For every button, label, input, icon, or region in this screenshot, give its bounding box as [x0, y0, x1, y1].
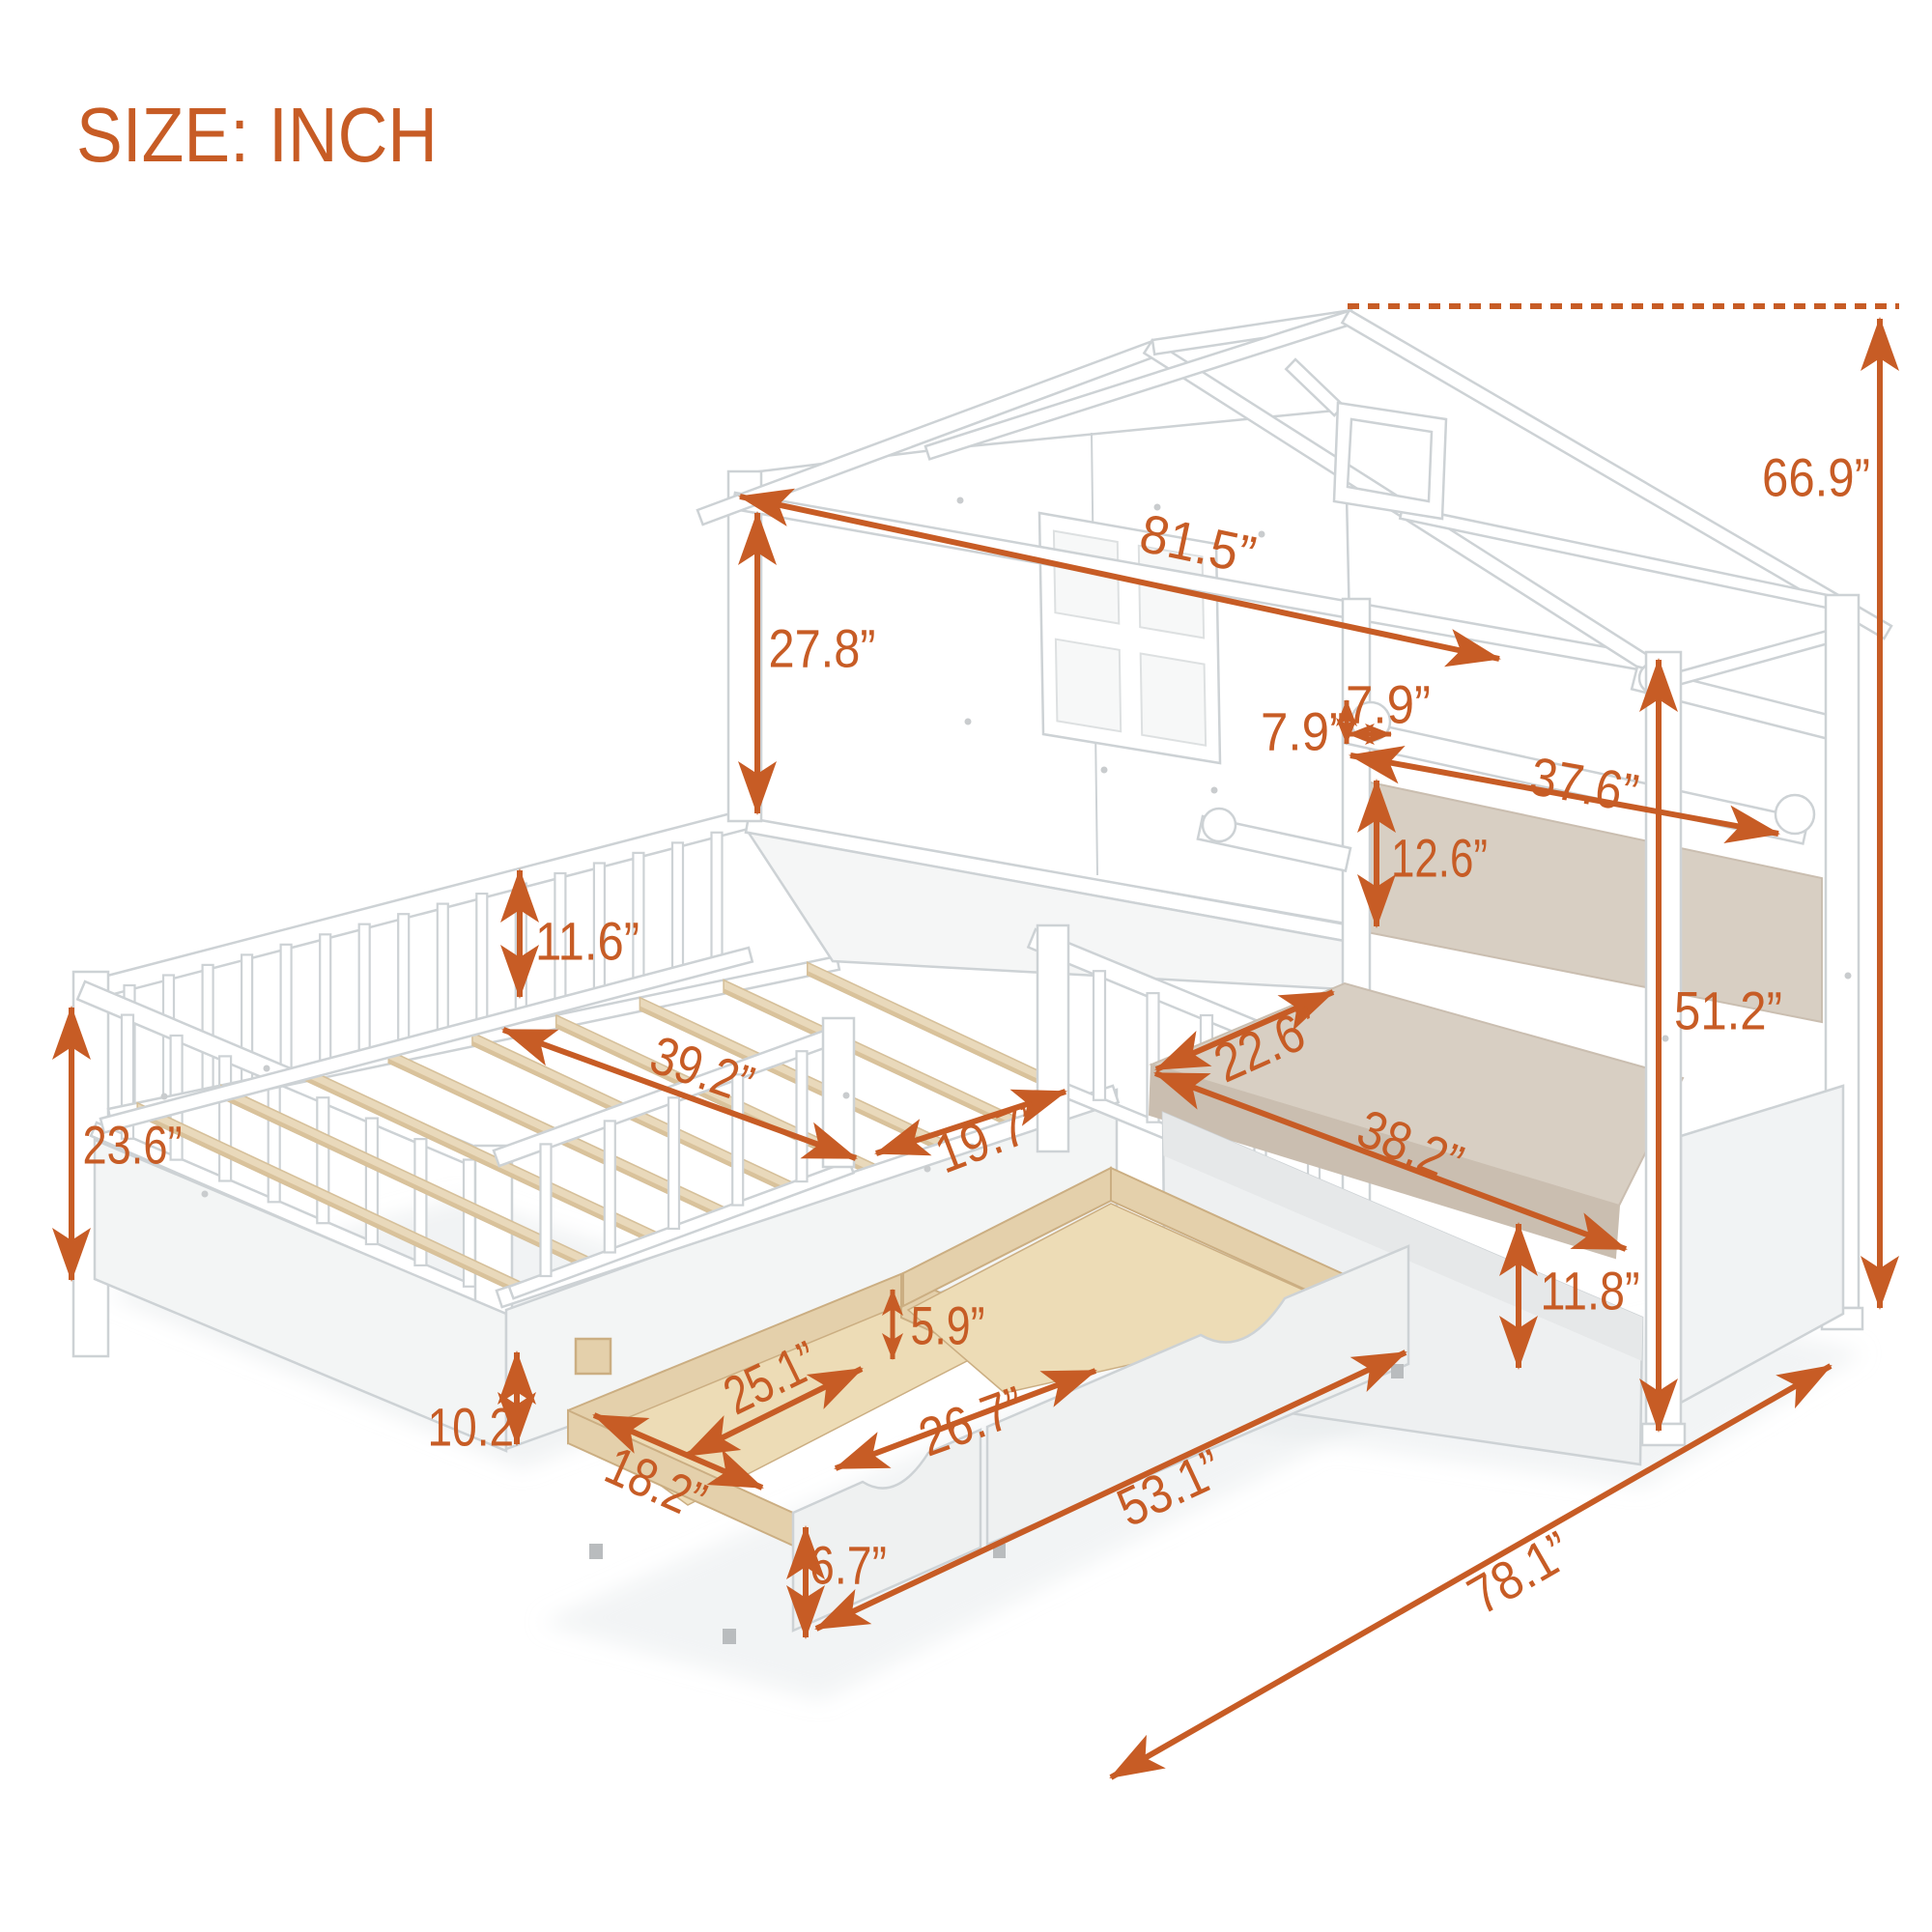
svg-text:10.2”: 10.2”	[428, 1397, 529, 1458]
svg-text:27.8”: 27.8”	[769, 618, 876, 679]
svg-text:66.9”: 66.9”	[1762, 447, 1870, 508]
svg-text:SIZE: INCH: SIZE: INCH	[76, 92, 438, 178]
svg-text:5.9”: 5.9”	[911, 1295, 985, 1356]
svg-text:23.6”: 23.6”	[83, 1115, 183, 1176]
svg-text:11.6”: 11.6”	[535, 911, 639, 972]
svg-text:51.2”: 51.2”	[1674, 980, 1782, 1041]
svg-text:7.9”: 7.9”	[1346, 674, 1431, 735]
svg-text:7.9”: 7.9”	[1261, 701, 1346, 762]
svg-text:11.8”: 11.8”	[1541, 1261, 1640, 1321]
svg-text:12.6”: 12.6”	[1391, 828, 1488, 889]
svg-text:6.7”: 6.7”	[810, 1535, 887, 1596]
